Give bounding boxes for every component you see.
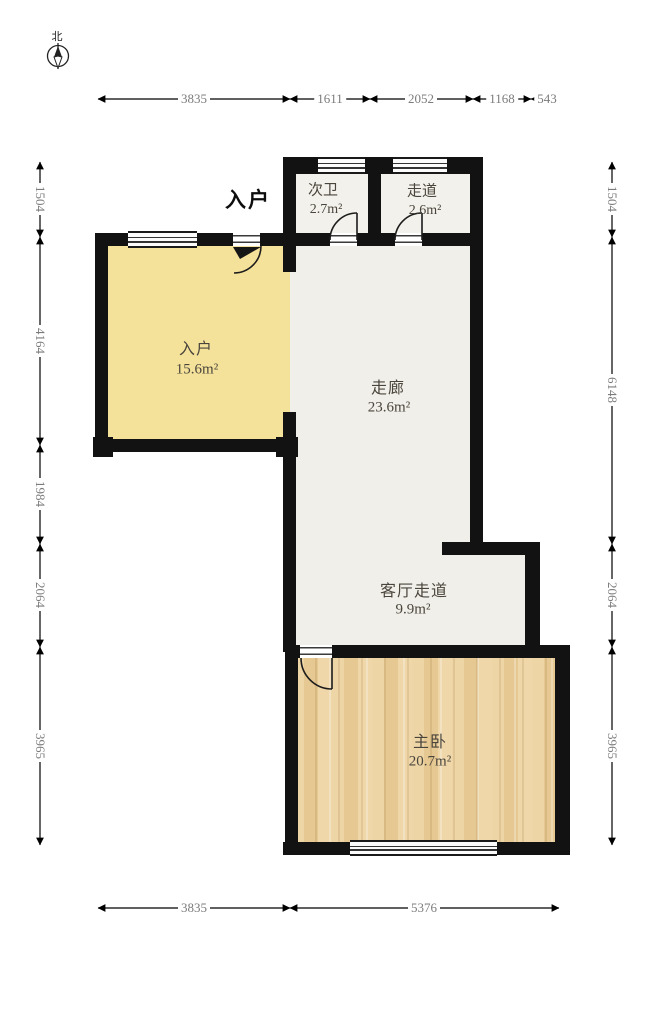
wall-top-exterior (283, 157, 483, 174)
room-label-entry-area: 15.6m² (176, 362, 218, 379)
room-label-hallway-name: 走廊 (371, 374, 405, 398)
dim-label-right-2: 6148 (605, 374, 619, 406)
wall-entry-bottom-corner-left (93, 437, 113, 457)
window-line (128, 237, 197, 239)
threshold-entry-door (233, 233, 260, 246)
threshold-bath-door (330, 233, 357, 246)
room-label-master-bedroom-area: 20.7m² (409, 754, 451, 771)
wall-entry-left (95, 233, 108, 452)
dim-label-left-4: 2064 (33, 579, 47, 611)
wall-corridor-left (283, 412, 296, 652)
dim-label-right-1: 1504 (605, 183, 619, 215)
wall-bedroom-bottom-seg2 (497, 842, 570, 855)
room-label-hallway-area: 23.6m² (368, 400, 410, 417)
wall-bedroom-left (285, 645, 298, 855)
dim-label-top-2: 1611 (314, 92, 346, 106)
threshold-passage-door (395, 233, 422, 246)
window-line (318, 167, 365, 169)
window-line (350, 846, 497, 848)
room-label-passage-name: 走道 (407, 180, 437, 201)
dim-label-left-2: 4164 (33, 325, 47, 357)
threshold-bedroom-door (300, 645, 332, 658)
window-line (128, 241, 197, 243)
dim-label-top-3: 2052 (405, 92, 437, 106)
room-label-passage-area: 2.6m² (409, 203, 442, 219)
room-label-living-corridor-name: 客厅走道 (380, 577, 448, 601)
wall-entry-bottom (95, 439, 298, 452)
window-entry (128, 231, 197, 248)
wall-bedroom-bottom-seg1 (283, 842, 350, 855)
dim-label-left-3: 1984 (33, 478, 47, 510)
compass-icon (48, 43, 69, 69)
room-label-second-bath-area: 2.7m² (310, 202, 343, 218)
room-label-entry-name: 入户 (179, 335, 213, 359)
window-master-bedroom (350, 840, 497, 856)
dim-label-top-4: 1168 (486, 92, 518, 106)
wall-bath-passage-divider (368, 172, 381, 240)
wall-band-seg4 (357, 233, 395, 246)
dim-label-right-3: 2064 (605, 579, 619, 611)
window-second-bath (318, 157, 365, 174)
wall-hallway-right (470, 157, 483, 542)
window-line (350, 849, 497, 851)
compass-north-label: 北 (52, 28, 63, 44)
wall-band-seg5 (422, 233, 483, 246)
dim-label-top-1: 3835 (178, 92, 210, 106)
wall-bedroom-top-seg1 (285, 645, 300, 658)
dim-label-bottom-1: 3835 (178, 901, 210, 915)
room-fill-living-corridor (470, 548, 530, 652)
wall-bedroom-right (555, 645, 570, 855)
wall-topblock-left (283, 157, 296, 272)
wall-step-right (525, 553, 540, 652)
room-label-master-bedroom-name: 主卧 (413, 728, 447, 752)
window-line (393, 163, 447, 165)
entry-marker-label: 入户 (225, 184, 271, 214)
room-label-living-corridor-area: 9.9m² (396, 602, 431, 619)
window-passage (393, 157, 447, 174)
window-line (393, 167, 447, 169)
floor-plan-canvas: 北 入户 次卫 2.7m² 走道 2.6m² 入户 15.6m² 走廊 23.6… (0, 0, 660, 1012)
room-label-second-bath-name: 次卫 (308, 179, 338, 200)
wall-band-seg3 (260, 233, 330, 246)
window-line (318, 163, 365, 165)
dim-label-right-4: 3965 (605, 730, 619, 762)
dim-label-left-1: 1504 (33, 183, 47, 215)
wall-bedroom-top-seg2 (332, 645, 570, 658)
wall-band-seg2 (195, 233, 233, 246)
dim-label-top-5: 543 (534, 92, 560, 106)
dim-label-bottom-2: 5376 (408, 901, 440, 915)
dim-label-left-5: 3965 (33, 730, 47, 762)
